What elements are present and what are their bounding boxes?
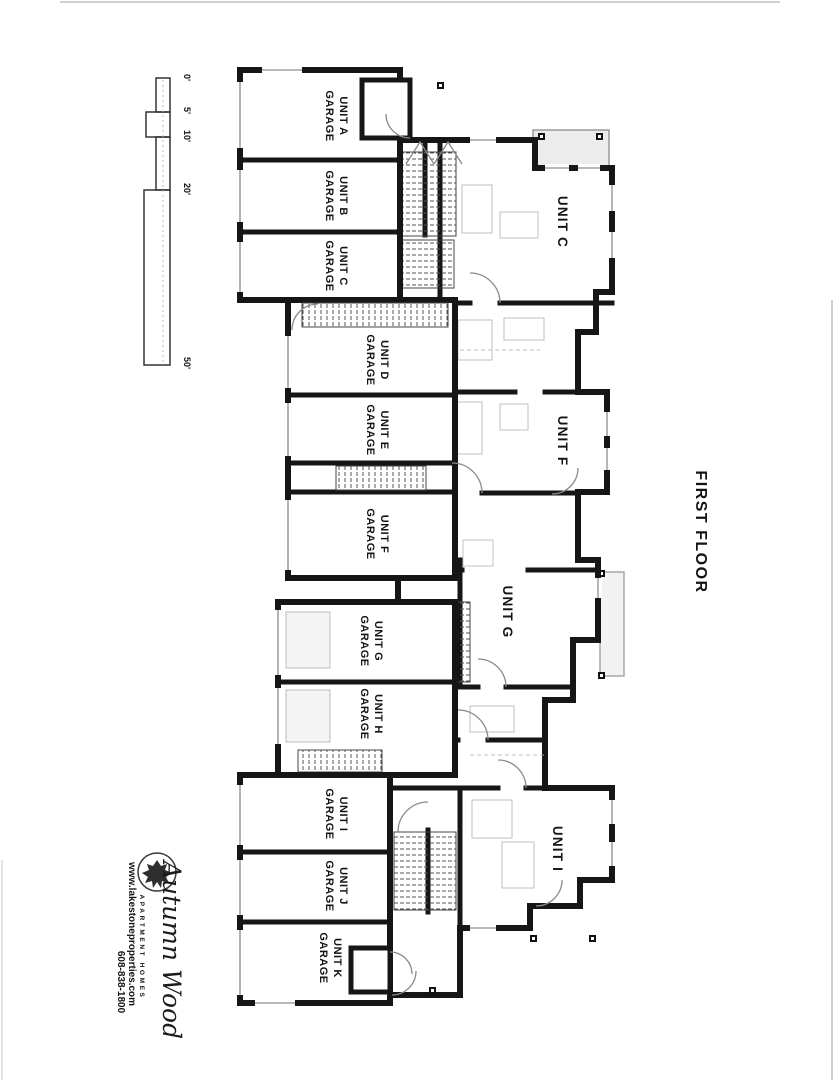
unit-label-c: UNIT C [555, 196, 570, 248]
unit-label-i: UNIT I [550, 826, 565, 872]
scale-label-5: 5' [182, 107, 192, 114]
garage-label-c1: UNIT C [337, 246, 349, 286]
entry-alcove-k [351, 948, 390, 992]
stair-band-h [298, 750, 382, 772]
garage-label-h2: GARAGE [358, 688, 370, 739]
scale-label-10: 10' [182, 130, 192, 142]
garage-label-a1: UNIT A [337, 96, 349, 135]
scale-label-50: 50' [182, 357, 192, 369]
scale-labels: 0' 5' 10' 20' 50' [182, 74, 192, 369]
unit-label-g: UNIT G [500, 586, 515, 639]
garage-label-j2: GARAGE [323, 860, 335, 911]
garage-label-d2: GARAGE [364, 334, 376, 385]
garage-label-b2: GARAGE [323, 170, 335, 221]
garage-label-j1: UNIT J [337, 867, 349, 905]
garage-label-f1: UNIT F [378, 515, 390, 553]
garage-label-e2: GARAGE [364, 404, 376, 455]
garage-label-a2: GARAGE [323, 90, 335, 141]
brand-phone: 608-838-1800 [115, 951, 126, 1014]
garage-label-c2: GARAGE [323, 240, 335, 291]
page-title: FIRST FLOOR [692, 470, 709, 593]
brand-website: www.lakestoneproperties.com [126, 861, 137, 1006]
garage-label-f2: GARAGE [364, 508, 376, 559]
garage-label-i2: GARAGE [323, 788, 335, 839]
scale-label-0: 0' [182, 74, 192, 81]
entry-alcove-a [362, 80, 410, 138]
garage-label-g2: GARAGE [358, 615, 370, 666]
garage-pad-h [286, 690, 330, 742]
stair-band-f [336, 466, 426, 490]
scale-label-20: 20' [182, 183, 192, 195]
stair-band-d [302, 303, 448, 327]
deck-unit-c [533, 130, 609, 168]
garage-pad-g [286, 612, 330, 668]
garage-label-d1: UNIT D [378, 340, 390, 380]
scale-bar [144, 78, 170, 365]
floor-plan-page: 0' 5' 10' 20' 50' UNIT A GARAGE UNIT B G… [0, 0, 835, 1080]
floor-plan-drawing: 0' 5' 10' 20' 50' UNIT A GARAGE UNIT B G… [0, 0, 835, 1080]
garage-label-e1: UNIT E [378, 410, 390, 449]
brand-subtitle: APARTMENT HOMES [138, 895, 145, 1000]
unit-label-f: UNIT F [555, 416, 570, 467]
brand-name: Autumn Wood [157, 859, 186, 1039]
branding: Autumn Wood APARTMENT HOMES www.lakeston… [115, 853, 186, 1039]
garage-label-g1: UNIT G [372, 621, 384, 661]
garage-label-k2: GARAGE [317, 932, 329, 983]
garage-label-h1: UNIT H [372, 694, 384, 734]
garage-label-b1: UNIT B [337, 176, 349, 216]
garage-block-ijk [240, 775, 390, 1003]
garage-label-k1: UNIT K [331, 938, 343, 978]
garage-label-i1: UNIT I [337, 797, 349, 832]
